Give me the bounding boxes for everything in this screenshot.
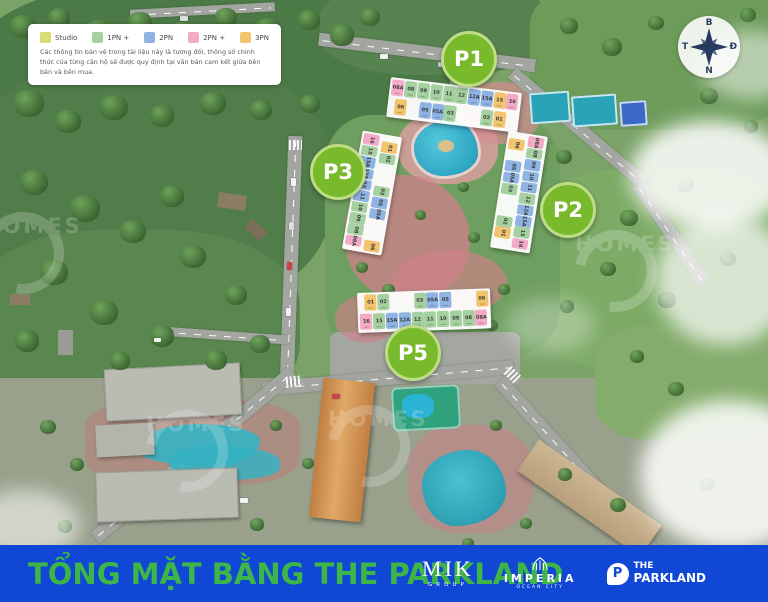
tree	[602, 38, 622, 56]
unit-cell-06: 06	[508, 138, 525, 151]
unit-cell-12A: 12A	[467, 89, 481, 106]
unit-cell-05A: 05A	[426, 293, 439, 309]
sport-court	[619, 100, 648, 127]
car	[240, 498, 248, 503]
compass-east-label: Đ	[729, 42, 737, 52]
imperia-crown-icon	[529, 557, 551, 571]
car	[287, 262, 292, 270]
tree	[150, 105, 174, 127]
car	[289, 222, 294, 230]
tree	[250, 100, 272, 120]
unit-cell-08A: 08A	[345, 234, 363, 247]
unit-cell-10: 10	[437, 311, 450, 327]
legend-items: Studio1PN +2PN2PN +3PN	[40, 32, 269, 43]
unit-cell-03: 03	[414, 293, 427, 309]
building-roof	[10, 294, 30, 305]
unit-cell-01: 01	[364, 295, 377, 311]
legend-swatch-icon	[40, 32, 51, 43]
tree	[302, 458, 314, 469]
car	[332, 394, 340, 399]
unit-cell-15A: 15A	[386, 313, 399, 329]
tree	[468, 232, 480, 243]
unit-cell-16: 16	[511, 237, 528, 250]
legend-item: 3PN	[240, 32, 269, 43]
tree	[225, 285, 247, 305]
unit-cell-16: 16	[505, 94, 519, 111]
unit-cell-05A: 05A	[431, 103, 445, 120]
car	[180, 16, 188, 21]
unit-cell-06: 06	[476, 291, 489, 307]
tree	[150, 325, 174, 347]
tree	[14, 90, 44, 117]
unit-cell-03: 03	[443, 105, 457, 122]
tree	[40, 260, 68, 285]
the-parkland-logo: P THE PARKLAND	[607, 562, 706, 584]
unit-cell-06: 06	[363, 240, 381, 253]
parkland-p-icon: P	[607, 563, 629, 585]
tree	[298, 10, 320, 30]
unit-cell-10: 10	[429, 84, 443, 101]
tree	[40, 420, 56, 434]
compass: B Đ N T	[678, 16, 740, 78]
unit-cell-02: 02	[377, 294, 390, 310]
building-roof	[95, 423, 155, 458]
tree	[205, 350, 227, 370]
legend-label: 2PN	[159, 34, 173, 42]
tree	[55, 110, 81, 133]
tree	[250, 518, 264, 531]
tree	[300, 95, 320, 113]
car	[154, 338, 161, 342]
unit-cell-15: 15	[493, 92, 507, 109]
unit-cell-05A: 05A	[369, 208, 387, 221]
tree	[668, 382, 684, 396]
tree	[648, 16, 664, 30]
unit-cell-08A: 08A	[391, 80, 405, 97]
mik-logo-subtext: GROUP	[428, 583, 468, 589]
crosswalk	[289, 140, 302, 150]
tree	[250, 335, 270, 353]
unit-cell-03: 03	[501, 182, 518, 195]
legend-item: Studio	[40, 32, 77, 43]
tree	[120, 220, 146, 243]
legend-disclaimer: Các thông tin bản vẽ trong tài liệu này …	[40, 48, 269, 78]
legend-label: 1PN +	[107, 34, 129, 42]
tree	[490, 420, 502, 431]
unit-cell-08: 08	[404, 81, 418, 98]
unit-cell-15: 15	[373, 313, 386, 329]
unit-cell-02: 02	[480, 109, 494, 126]
unit-row: 01020305A0506	[364, 290, 488, 311]
footer-logos: MIK GROUP IMPERIA OCEAN CITY P THE PARKL…	[422, 545, 706, 602]
unit-cell-05: 05	[418, 102, 432, 119]
legend-swatch-icon	[144, 32, 155, 43]
unit-cell-05: 05	[439, 292, 452, 308]
tree	[110, 352, 130, 370]
unit-cell-08: 08	[462, 310, 475, 326]
unit-cell-12: 12	[455, 87, 469, 104]
compass-star-icon	[687, 25, 731, 69]
marker-p5: P5	[385, 325, 441, 381]
legend-item: 1PN +	[92, 32, 129, 43]
sport-court	[529, 91, 571, 125]
tree	[180, 245, 206, 268]
unit-cell-02: 02	[379, 153, 397, 166]
tree	[90, 300, 118, 325]
marker-p2: P2	[540, 182, 596, 238]
parkland-logo-line2: PARKLAND	[634, 572, 706, 585]
car	[380, 54, 388, 59]
unit-cell-01: 01	[492, 111, 506, 128]
legend-label: Studio	[55, 34, 77, 42]
marker-p1: P1	[441, 31, 497, 87]
car	[291, 178, 296, 186]
pool-island	[438, 140, 454, 152]
unit-cell-09: 09	[524, 159, 541, 172]
tree	[70, 195, 100, 222]
legend-item: 2PN	[144, 32, 173, 43]
tree	[70, 458, 84, 471]
site-plan-image: HOMESHOMESHOMESHOMES 08A080910111212A15A…	[0, 0, 768, 602]
unit-cell-06: 06	[394, 99, 408, 116]
legend-box: Studio1PN +2PN2PN +3PN Các thông tin bản…	[28, 24, 281, 85]
legend-swatch-icon	[92, 32, 103, 43]
unit-cell-15A: 15A	[480, 91, 494, 108]
footer-bar: TỔNG MẶT BẰNG THE PARKLAND MIK GROUP IMP…	[0, 545, 768, 602]
tree	[600, 262, 616, 276]
unit-cell-09: 09	[417, 83, 431, 100]
unit-cell-16: 16	[360, 314, 373, 330]
building-roof	[104, 362, 243, 421]
crosswalk	[286, 375, 303, 387]
imperia-logo-text: IMPERIA	[504, 573, 577, 584]
aerial-map: HOMESHOMESHOMESHOMES 08A080910111212A15A…	[0, 0, 768, 545]
car	[286, 308, 291, 316]
compass-west-label: T	[682, 42, 688, 52]
tree	[100, 95, 128, 120]
tree	[558, 468, 572, 481]
unit-cell-09: 09	[450, 311, 463, 327]
kids-pool	[402, 394, 434, 418]
legend-swatch-icon	[188, 32, 199, 43]
tree	[620, 210, 638, 226]
marker-p3: P3	[310, 144, 366, 200]
legend-label: 2PN +	[203, 34, 225, 42]
compass-north-label: B	[706, 18, 713, 28]
tree	[520, 518, 532, 529]
tree	[330, 24, 354, 46]
mik-group-logo: MIK GROUP	[422, 558, 474, 589]
tree	[20, 170, 48, 195]
tree	[160, 185, 184, 207]
tree	[200, 92, 226, 115]
compass-south-label: N	[705, 66, 713, 76]
tree	[458, 182, 469, 192]
unit-cell-01: 01	[494, 226, 511, 239]
building-roof	[95, 468, 239, 523]
unit-cell-11: 11	[442, 86, 456, 103]
building-roof	[58, 330, 73, 355]
unit-cell-11: 11	[424, 311, 437, 327]
tree	[15, 330, 39, 352]
legend-label: 3PN	[255, 34, 269, 42]
imperia-ocean-city-logo: IMPERIA OCEAN CITY	[504, 557, 577, 591]
building-p5: 01020305A0506161515A12A121110090808A	[357, 288, 491, 332]
unit-cell-12: 12	[518, 192, 535, 205]
tree	[360, 8, 380, 26]
tree	[462, 538, 474, 545]
tree	[610, 498, 626, 512]
parkland-logo-text: THE PARKLAND	[634, 562, 706, 584]
legend-item: 2PN +	[188, 32, 225, 43]
tree	[740, 8, 756, 22]
tree	[630, 350, 644, 363]
imperia-logo-subtext: OCEAN CITY	[516, 586, 563, 591]
tree	[415, 210, 426, 220]
unit-cell-08A: 08A	[475, 310, 488, 326]
tree	[556, 150, 572, 164]
cloud	[505, 298, 595, 353]
tree	[356, 262, 368, 273]
mik-logo-text: MIK	[422, 558, 474, 580]
legend-swatch-icon	[240, 32, 251, 43]
sport-court	[571, 93, 618, 127]
tree	[498, 284, 510, 295]
tree	[270, 420, 282, 431]
tree	[560, 18, 578, 34]
